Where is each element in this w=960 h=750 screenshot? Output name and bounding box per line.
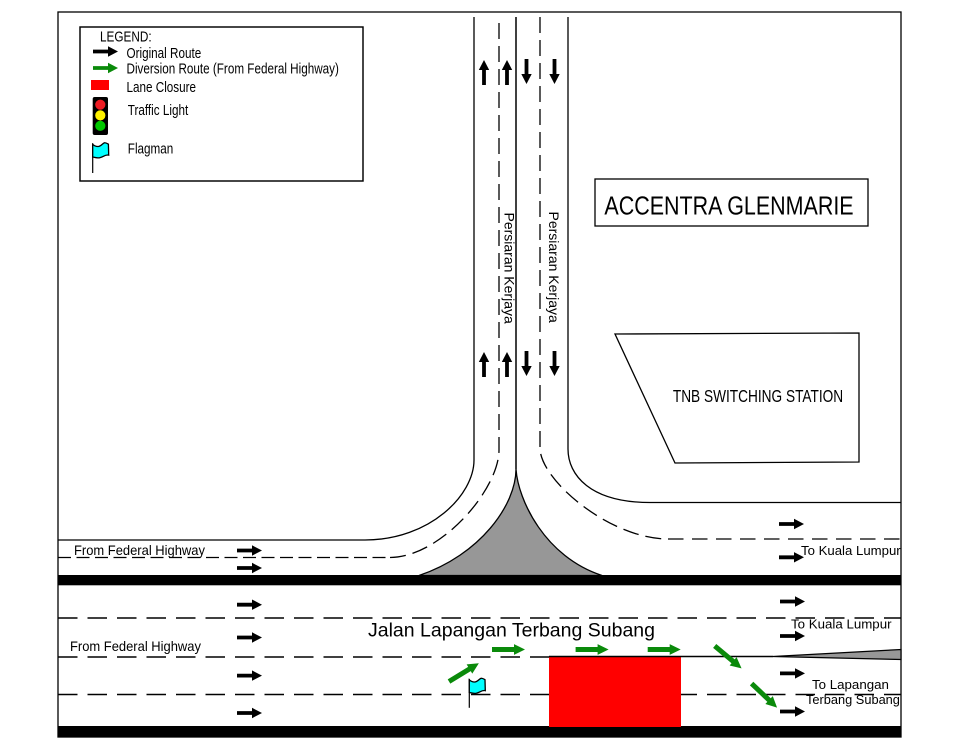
svg-text:Traffic Light: Traffic Light — [128, 102, 189, 119]
svg-text:From Federal Highway: From Federal Highway — [74, 543, 205, 558]
svg-text:Terbang Subang: Terbang Subang — [806, 692, 900, 707]
svg-text:LEGEND:: LEGEND: — [100, 28, 152, 45]
svg-text:Jalan Lapangan Terbang Subang: Jalan Lapangan Terbang Subang — [368, 620, 655, 642]
svg-text:To Lapangan: To Lapangan — [812, 677, 889, 692]
svg-text:Flagman: Flagman — [128, 140, 173, 157]
svg-text:From Federal Highway: From Federal Highway — [70, 639, 201, 654]
svg-text:TNB SWITCHING STATION: TNB SWITCHING STATION — [673, 388, 843, 407]
svg-text:To Kuala Lumpur: To Kuala Lumpur — [791, 617, 892, 632]
svg-text:Persiaran Kerjaya: Persiaran Kerjaya — [502, 213, 518, 324]
svg-text:Diversion Route (From Federal: Diversion Route (From Federal Highway) — [127, 60, 339, 77]
svg-text:ACCENTRA GLENMARIE: ACCENTRA GLENMARIE — [604, 192, 853, 221]
svg-text:Lane Closure: Lane Closure — [127, 79, 197, 96]
svg-text:Original Route: Original Route — [127, 45, 202, 62]
svg-text:To Kuala Lumpur: To Kuala Lumpur — [801, 543, 901, 558]
svg-text:Persiaran Kerjaya: Persiaran Kerjaya — [546, 212, 562, 323]
